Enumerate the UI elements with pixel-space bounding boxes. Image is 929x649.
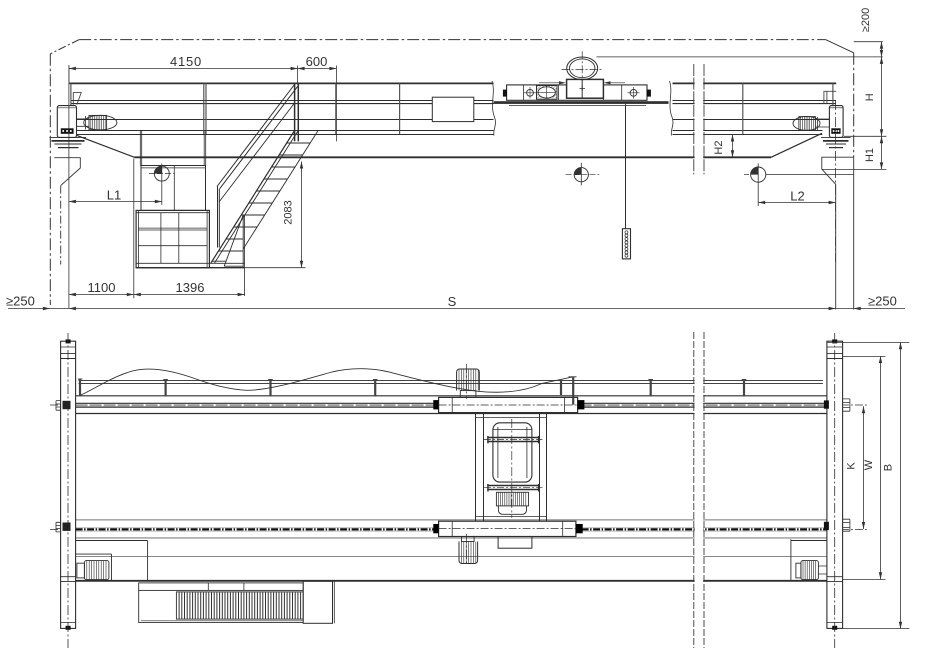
svg-text:B: B [883,464,895,471]
svg-text:2083: 2083 [283,200,295,224]
svg-text:H: H [864,93,876,101]
svg-text:4150: 4150 [170,54,202,69]
svg-text:K: K [846,462,858,470]
svg-text:H2: H2 [713,141,725,155]
svg-text:W: W [863,459,875,470]
svg-text:≥250: ≥250 [6,294,35,309]
svg-text:S: S [448,294,457,309]
svg-text:≥200: ≥200 [860,8,872,32]
svg-text:H1: H1 [864,148,876,162]
svg-text:≥250: ≥250 [868,294,897,309]
svg-text:600: 600 [306,54,328,69]
svg-text:1100: 1100 [88,280,116,295]
svg-text:L2: L2 [790,189,804,204]
svg-text:L1: L1 [107,188,121,203]
svg-text:1396: 1396 [176,280,205,295]
